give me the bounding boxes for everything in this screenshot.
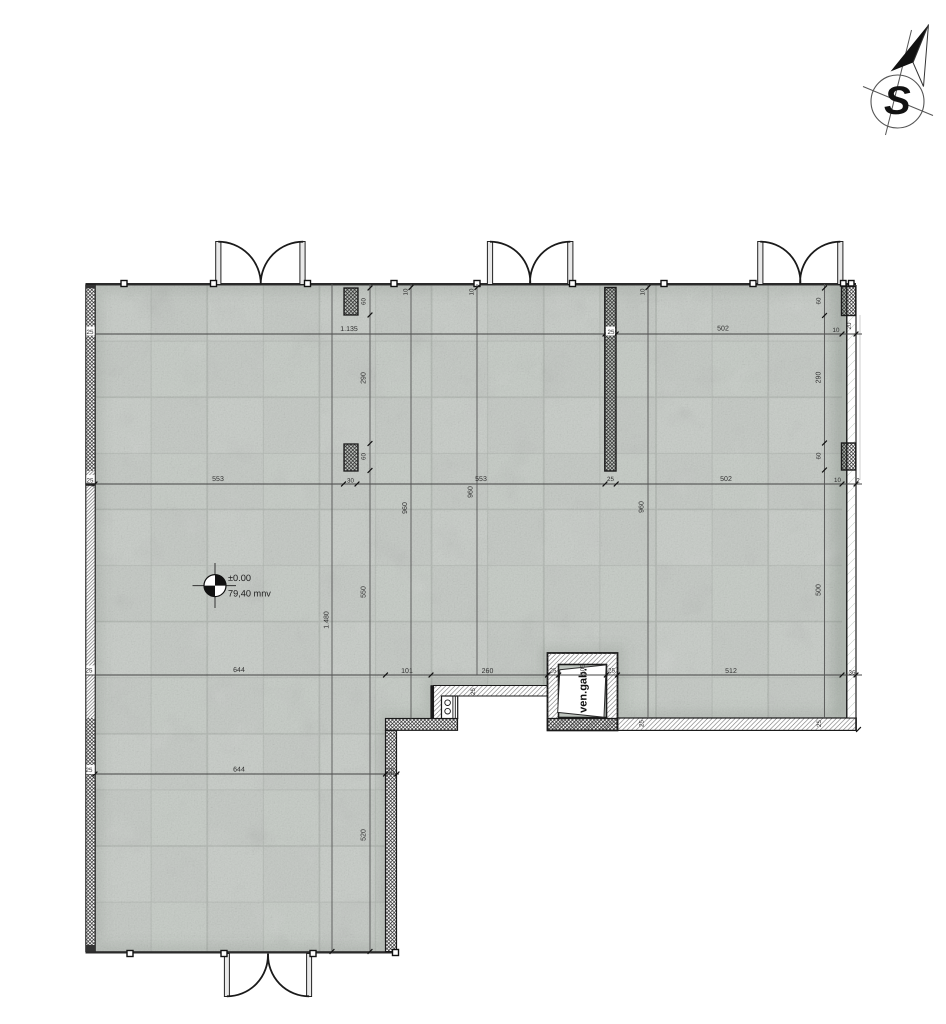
svg-text:960: 960 (639, 501, 646, 513)
svg-text:502: 502 (720, 476, 732, 483)
svg-text:36: 36 (849, 670, 856, 677)
svg-text:25: 25 (87, 329, 94, 336)
svg-text:550: 550 (361, 586, 368, 598)
svg-text:553: 553 (212, 476, 224, 483)
svg-text:25: 25 (608, 329, 615, 336)
svg-text:10: 10 (469, 288, 476, 295)
svg-text:2: 2 (856, 478, 860, 485)
svg-text:10: 10 (403, 288, 410, 295)
svg-text:512: 512 (725, 668, 737, 675)
svg-text:502: 502 (717, 326, 729, 333)
svg-text:1.480: 1.480 (324, 611, 331, 629)
svg-text:25: 25 (387, 768, 394, 775)
svg-text:25: 25 (86, 767, 93, 774)
svg-text:60: 60 (816, 452, 823, 459)
svg-text:25: 25 (607, 476, 614, 483)
svg-text:10: 10 (833, 327, 840, 334)
svg-text:553: 553 (475, 476, 487, 483)
svg-text:290: 290 (361, 372, 368, 384)
svg-text:105: 105 (580, 664, 587, 675)
svg-text:520: 520 (361, 829, 368, 841)
svg-text:25: 25 (86, 668, 93, 675)
svg-text:60: 60 (361, 453, 368, 460)
svg-text:25: 25 (639, 720, 646, 727)
svg-text:644: 644 (233, 767, 245, 774)
svg-text:101: 101 (401, 668, 413, 675)
svg-text:30: 30 (347, 478, 354, 485)
svg-text:260: 260 (482, 668, 494, 675)
svg-text:25: 25 (816, 720, 823, 727)
svg-text:60: 60 (816, 297, 823, 304)
svg-text:25: 25 (608, 668, 615, 675)
svg-text:20: 20 (846, 322, 853, 329)
svg-text:644: 644 (233, 667, 245, 674)
svg-text:25: 25 (550, 668, 557, 675)
svg-text:60: 60 (361, 298, 368, 305)
svg-text:25: 25 (87, 478, 94, 485)
svg-text:10: 10 (640, 288, 647, 295)
svg-text:290: 290 (816, 372, 823, 384)
svg-text:960: 960 (468, 486, 475, 498)
svg-text:500: 500 (816, 584, 823, 596)
svg-text:10: 10 (834, 477, 841, 484)
svg-text:25: 25 (470, 688, 477, 695)
svg-text:1.135: 1.135 (340, 326, 358, 333)
svg-text:±0.00: ±0.00 (228, 573, 251, 583)
svg-text:960: 960 (402, 502, 409, 514)
svg-text:S: S (884, 79, 911, 123)
svg-text:79,40 mnv: 79,40 mnv (228, 589, 271, 599)
